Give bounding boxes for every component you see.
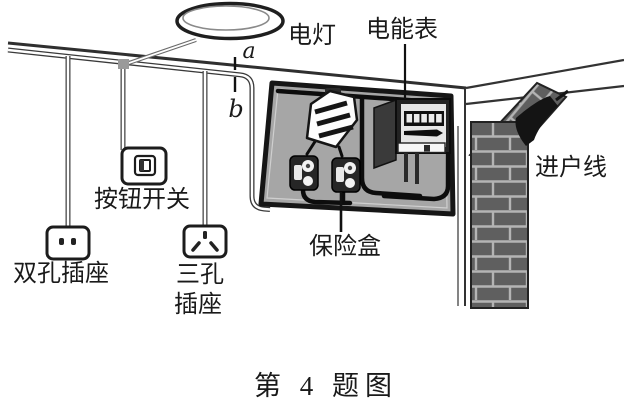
meter-terminal-cover <box>398 143 445 153</box>
ceiling-wire <box>8 50 270 210</box>
distribution-panel <box>261 83 453 214</box>
label-point-a: a <box>242 39 255 64</box>
label-button-switch: 按钮开关 <box>94 186 190 213</box>
three-hole-socket <box>184 226 226 257</box>
label-service-line: 进户线 <box>535 154 607 181</box>
label-fuse-box: 保险盒 <box>309 233 381 260</box>
label-two-hole-socket: 双孔插座 <box>13 260 109 287</box>
brick-column <box>470 83 568 308</box>
wall-corner <box>458 89 465 306</box>
ceiling-lamp <box>177 4 283 39</box>
figure-caption: 第 4 题图 <box>254 371 398 401</box>
ceiling-edge <box>8 43 466 88</box>
label-lamp: 电灯 <box>288 22 336 49</box>
label-three-hole-socket-line1: 三孔 <box>176 262 224 288</box>
figure-canvas: 电灯 电能表 进户线 按钮开关 双孔插座 三孔 插座 保险盒 a b 第 4 题… <box>0 0 624 406</box>
wire-junction <box>118 59 129 69</box>
label-energy-meter: 电能表 <box>366 16 438 43</box>
label-point-b: b <box>228 95 243 123</box>
fuse-holder-left <box>290 156 318 190</box>
two-hole-socket <box>47 227 89 259</box>
button-switch <box>122 148 166 184</box>
fuse-holder-right <box>332 158 360 192</box>
label-three-hole-socket-line2: 插座 <box>174 291 222 318</box>
